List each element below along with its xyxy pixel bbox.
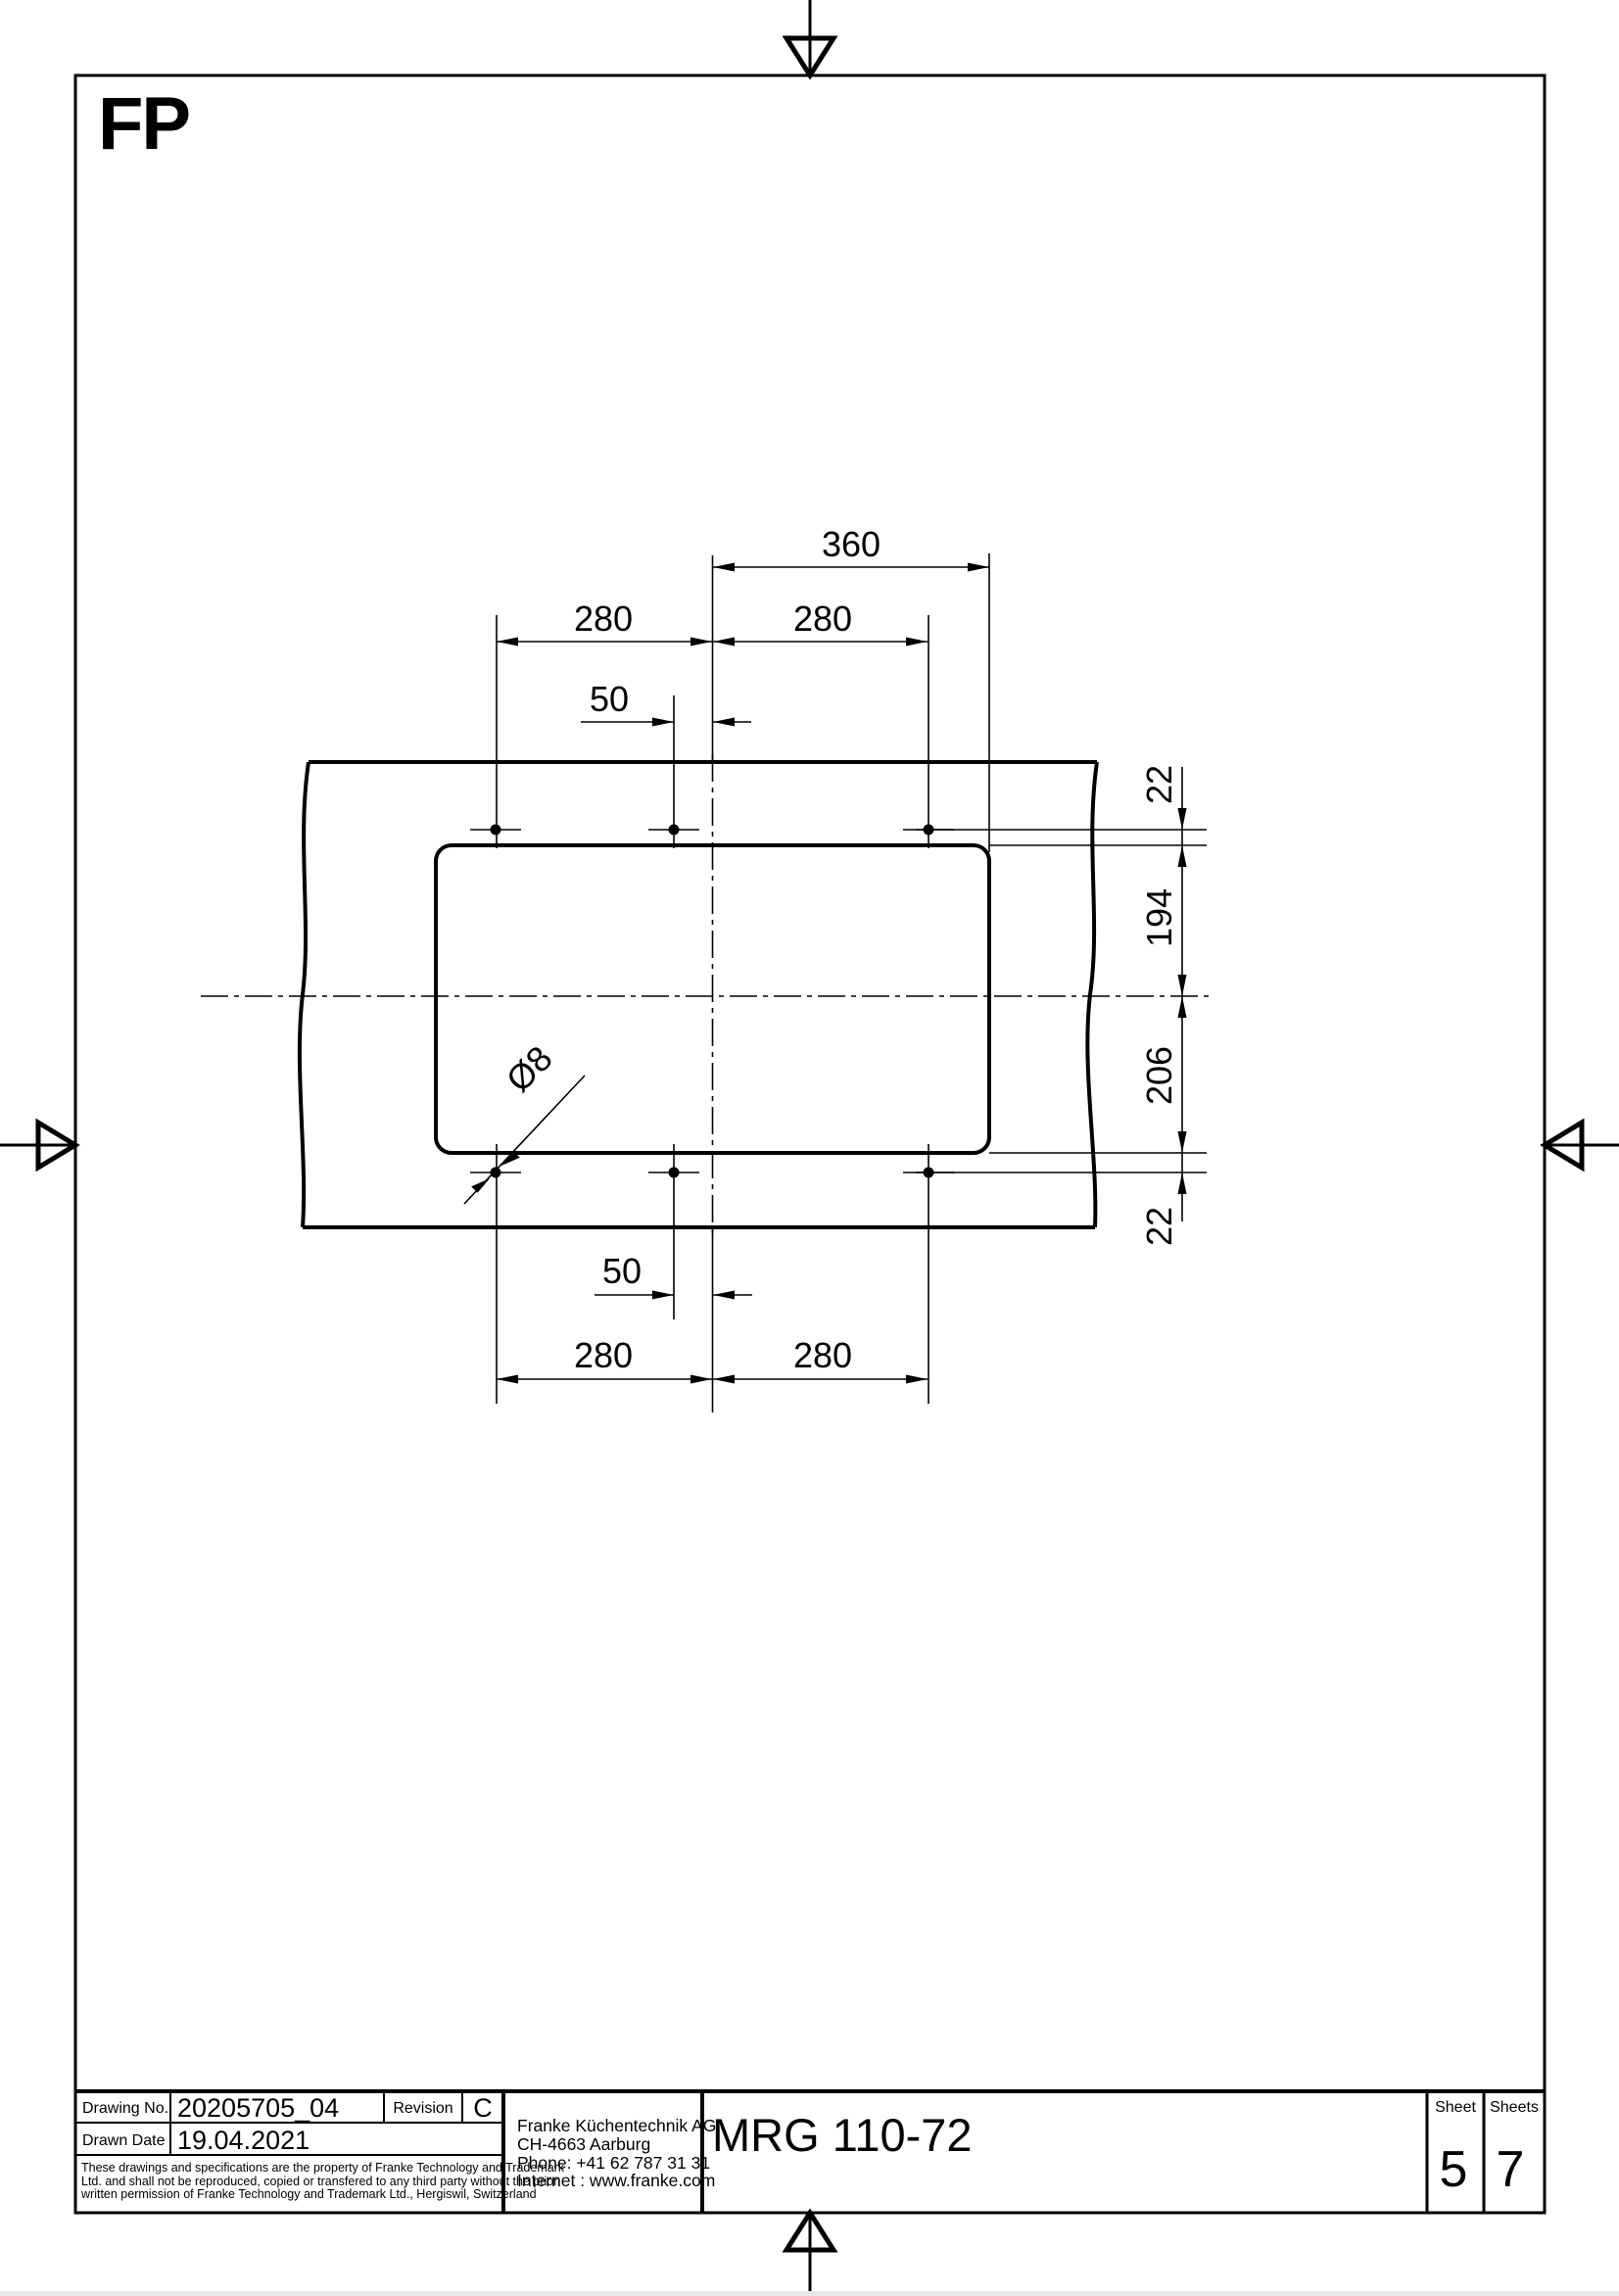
dim-label: 50 [590, 679, 629, 719]
company-block: Franke Küchentechnik AG CH-4663 Aarburg … [517, 2116, 716, 2190]
break-line-left [300, 762, 309, 1227]
registration-mark-bottom [786, 2213, 833, 2291]
disclaimer-line: These drawings and specifications are th… [81, 2161, 565, 2175]
dim-right-chain: 22 194 206 22 [1139, 765, 1187, 1246]
dim-label: 280 [793, 1335, 852, 1375]
page-border [75, 75, 1545, 2213]
technical-drawing-canvas: FP [0, 0, 1619, 2291]
sheets-label: Sheets [1490, 2099, 1539, 2116]
dim-top-left-span: 280 [497, 598, 712, 646]
dim-label: 22 [1139, 765, 1179, 804]
dim-label: Ø8 [499, 1038, 560, 1100]
sheets-value: 7 [1497, 2141, 1525, 2198]
revision-value: C [473, 2093, 493, 2123]
worktop-outline [300, 762, 1097, 1227]
sheet-label: Sheet [1435, 2099, 1476, 2116]
title-block: Drawing No. 20205705_04 Revision C Drawn… [75, 2091, 1545, 2213]
dim-label: 50 [602, 1251, 642, 1291]
mounting-hole [470, 1168, 521, 1178]
dim-bottom-left-span: 280 [497, 1335, 712, 1384]
dim-label: 280 [574, 1335, 633, 1375]
drawing-no-value: 20205705_04 [177, 2093, 339, 2123]
drawing-sheet: FP [0, 0, 1619, 2291]
sheet-value: 5 [1440, 2141, 1468, 2198]
dim-label: 22 [1139, 1207, 1179, 1246]
dim-top-right-span: 280 [713, 598, 928, 646]
company-internet: Internet : www.franke.com [517, 2171, 715, 2190]
dim-bottom-right-span: 280 [713, 1335, 928, 1384]
dim-label: 206 [1139, 1046, 1179, 1105]
break-line-right [1087, 762, 1097, 1227]
company-phone: Phone: +41 62 787 31 31 [517, 2153, 710, 2173]
drawn-date-label: Drawn Date [82, 2132, 166, 2149]
mounting-hole [470, 825, 521, 836]
dim-hole-diameter: Ø8 [464, 1038, 585, 1204]
company-name: Franke Küchentechnik AG [517, 2116, 716, 2135]
product-title: MRG 110-72 [712, 2109, 973, 2161]
revision-label: Revision [393, 2100, 452, 2117]
dim-label: 360 [822, 524, 881, 564]
drawing-no-label: Drawing No. [82, 2100, 168, 2117]
company-address: CH-4663 Aarburg [517, 2134, 650, 2154]
dim-label: 280 [793, 598, 852, 639]
dim-label: 280 [574, 598, 633, 639]
dim-top-offset: 50 [581, 679, 751, 727]
registration-mark-left [0, 1123, 75, 1168]
disclaimer-line: Ltd. and shall not be reproduced, copied… [81, 2175, 557, 2188]
drawn-date-value: 19.04.2021 [177, 2126, 310, 2155]
dim-top-width: 360 [713, 524, 989, 572]
disclaimer: These drawings and specifications are th… [80, 2161, 565, 2201]
registration-mark-right [1545, 1123, 1619, 1168]
dim-label: 194 [1139, 888, 1179, 947]
fp-logo: FP [98, 82, 189, 166]
disclaimer-line: written permission of Franke Technology … [80, 2187, 537, 2201]
registration-mark-top [786, 0, 833, 75]
